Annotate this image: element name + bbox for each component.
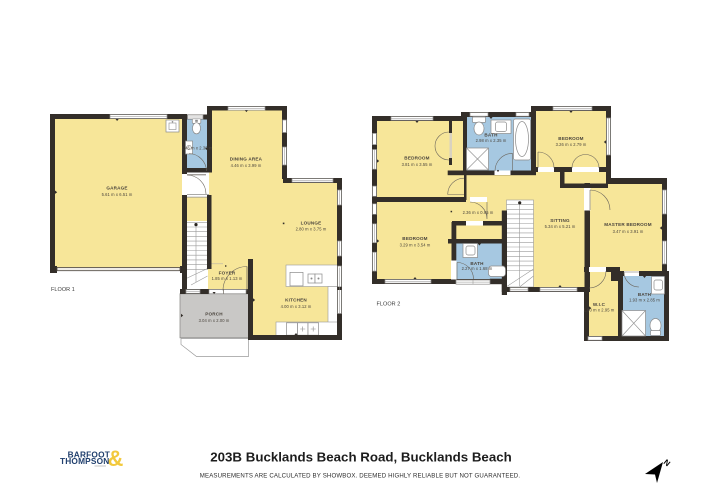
svg-text:3.26 m x 2.79 m: 3.26 m x 2.79 m (556, 142, 587, 147)
svg-text:THOMPSON: THOMPSON (60, 456, 110, 466)
svg-text:2.27 m x 1.68 m: 2.27 m x 1.68 m (462, 266, 493, 271)
svg-text:3.29 m x 3.54 m: 3.29 m x 3.54 m (400, 243, 431, 248)
svg-text:DINING AREA: DINING AREA (230, 157, 263, 162)
svg-text:2.98 m x 2.35 m: 2.98 m x 2.35 m (476, 138, 507, 143)
svg-text:3.47 m x 3.91 m: 3.47 m x 3.91 m (613, 229, 644, 234)
svg-text:BATH: BATH (484, 133, 498, 138)
svg-text:203B Bucklands Beach Road, Buc: 203B Bucklands Beach Road, Bucklands Bea… (210, 450, 512, 465)
svg-text:MASTER BEDROOM: MASTER BEDROOM (604, 222, 651, 227)
svg-text:4.00 m x 3.12 m: 4.00 m x 3.12 m (281, 304, 312, 309)
svg-text:1.46 m x 2.39 m: 1.46 m x 2.39 m (182, 146, 213, 151)
svg-text:5.34 m x 5.21 m: 5.34 m x 5.21 m (545, 224, 576, 229)
svg-text:W.I.C: W.I.C (593, 302, 606, 307)
svg-text:PORCH: PORCH (205, 312, 223, 317)
svg-text:3.81 m x 3.55 m: 3.81 m x 3.55 m (402, 162, 433, 167)
svg-text:5.61 m x 6.51 m: 5.61 m x 6.51 m (102, 192, 133, 197)
svg-text:LOUNGE: LOUNGE (301, 221, 322, 226)
svg-text:2.80 m x 3.75 m: 2.80 m x 3.75 m (296, 227, 327, 232)
svg-text:3.04 m x 2.00 m: 3.04 m x 2.00 m (199, 318, 230, 323)
svg-text:MEASUREMENTS ARE CALCULATED BY: MEASUREMENTS ARE CALCULATED BY SHOWBOX. … (200, 472, 521, 479)
svg-text:KITCHEN: KITCHEN (285, 298, 307, 303)
svg-text:1.85 m x 1.13 m: 1.85 m x 1.13 m (212, 276, 243, 281)
svg-text:GARAGE: GARAGE (106, 186, 127, 191)
svg-text:1.90 m x 2.95 m: 1.90 m x 2.95 m (584, 308, 615, 313)
svg-text:2.36 m x 0.95 m: 2.36 m x 0.95 m (463, 210, 494, 215)
svg-text:BEDROOM: BEDROOM (404, 156, 429, 161)
svg-text:1.93 m x 2.85 m: 1.93 m x 2.85 m (629, 298, 660, 303)
svg-text:SITTING: SITTING (550, 218, 570, 223)
svg-text:BATH: BATH (638, 292, 652, 297)
svg-text:FLOOR 1: FLOOR 1 (51, 287, 75, 293)
svg-text:BEDROOM: BEDROOM (402, 236, 427, 241)
svg-text:4.46 m x 3.99 m: 4.46 m x 3.99 m (231, 163, 262, 168)
svg-text:FOYER: FOYER (219, 271, 236, 276)
svg-text:BEDROOM: BEDROOM (558, 136, 583, 141)
svg-text:FLOOR 2: FLOOR 2 (377, 302, 401, 308)
